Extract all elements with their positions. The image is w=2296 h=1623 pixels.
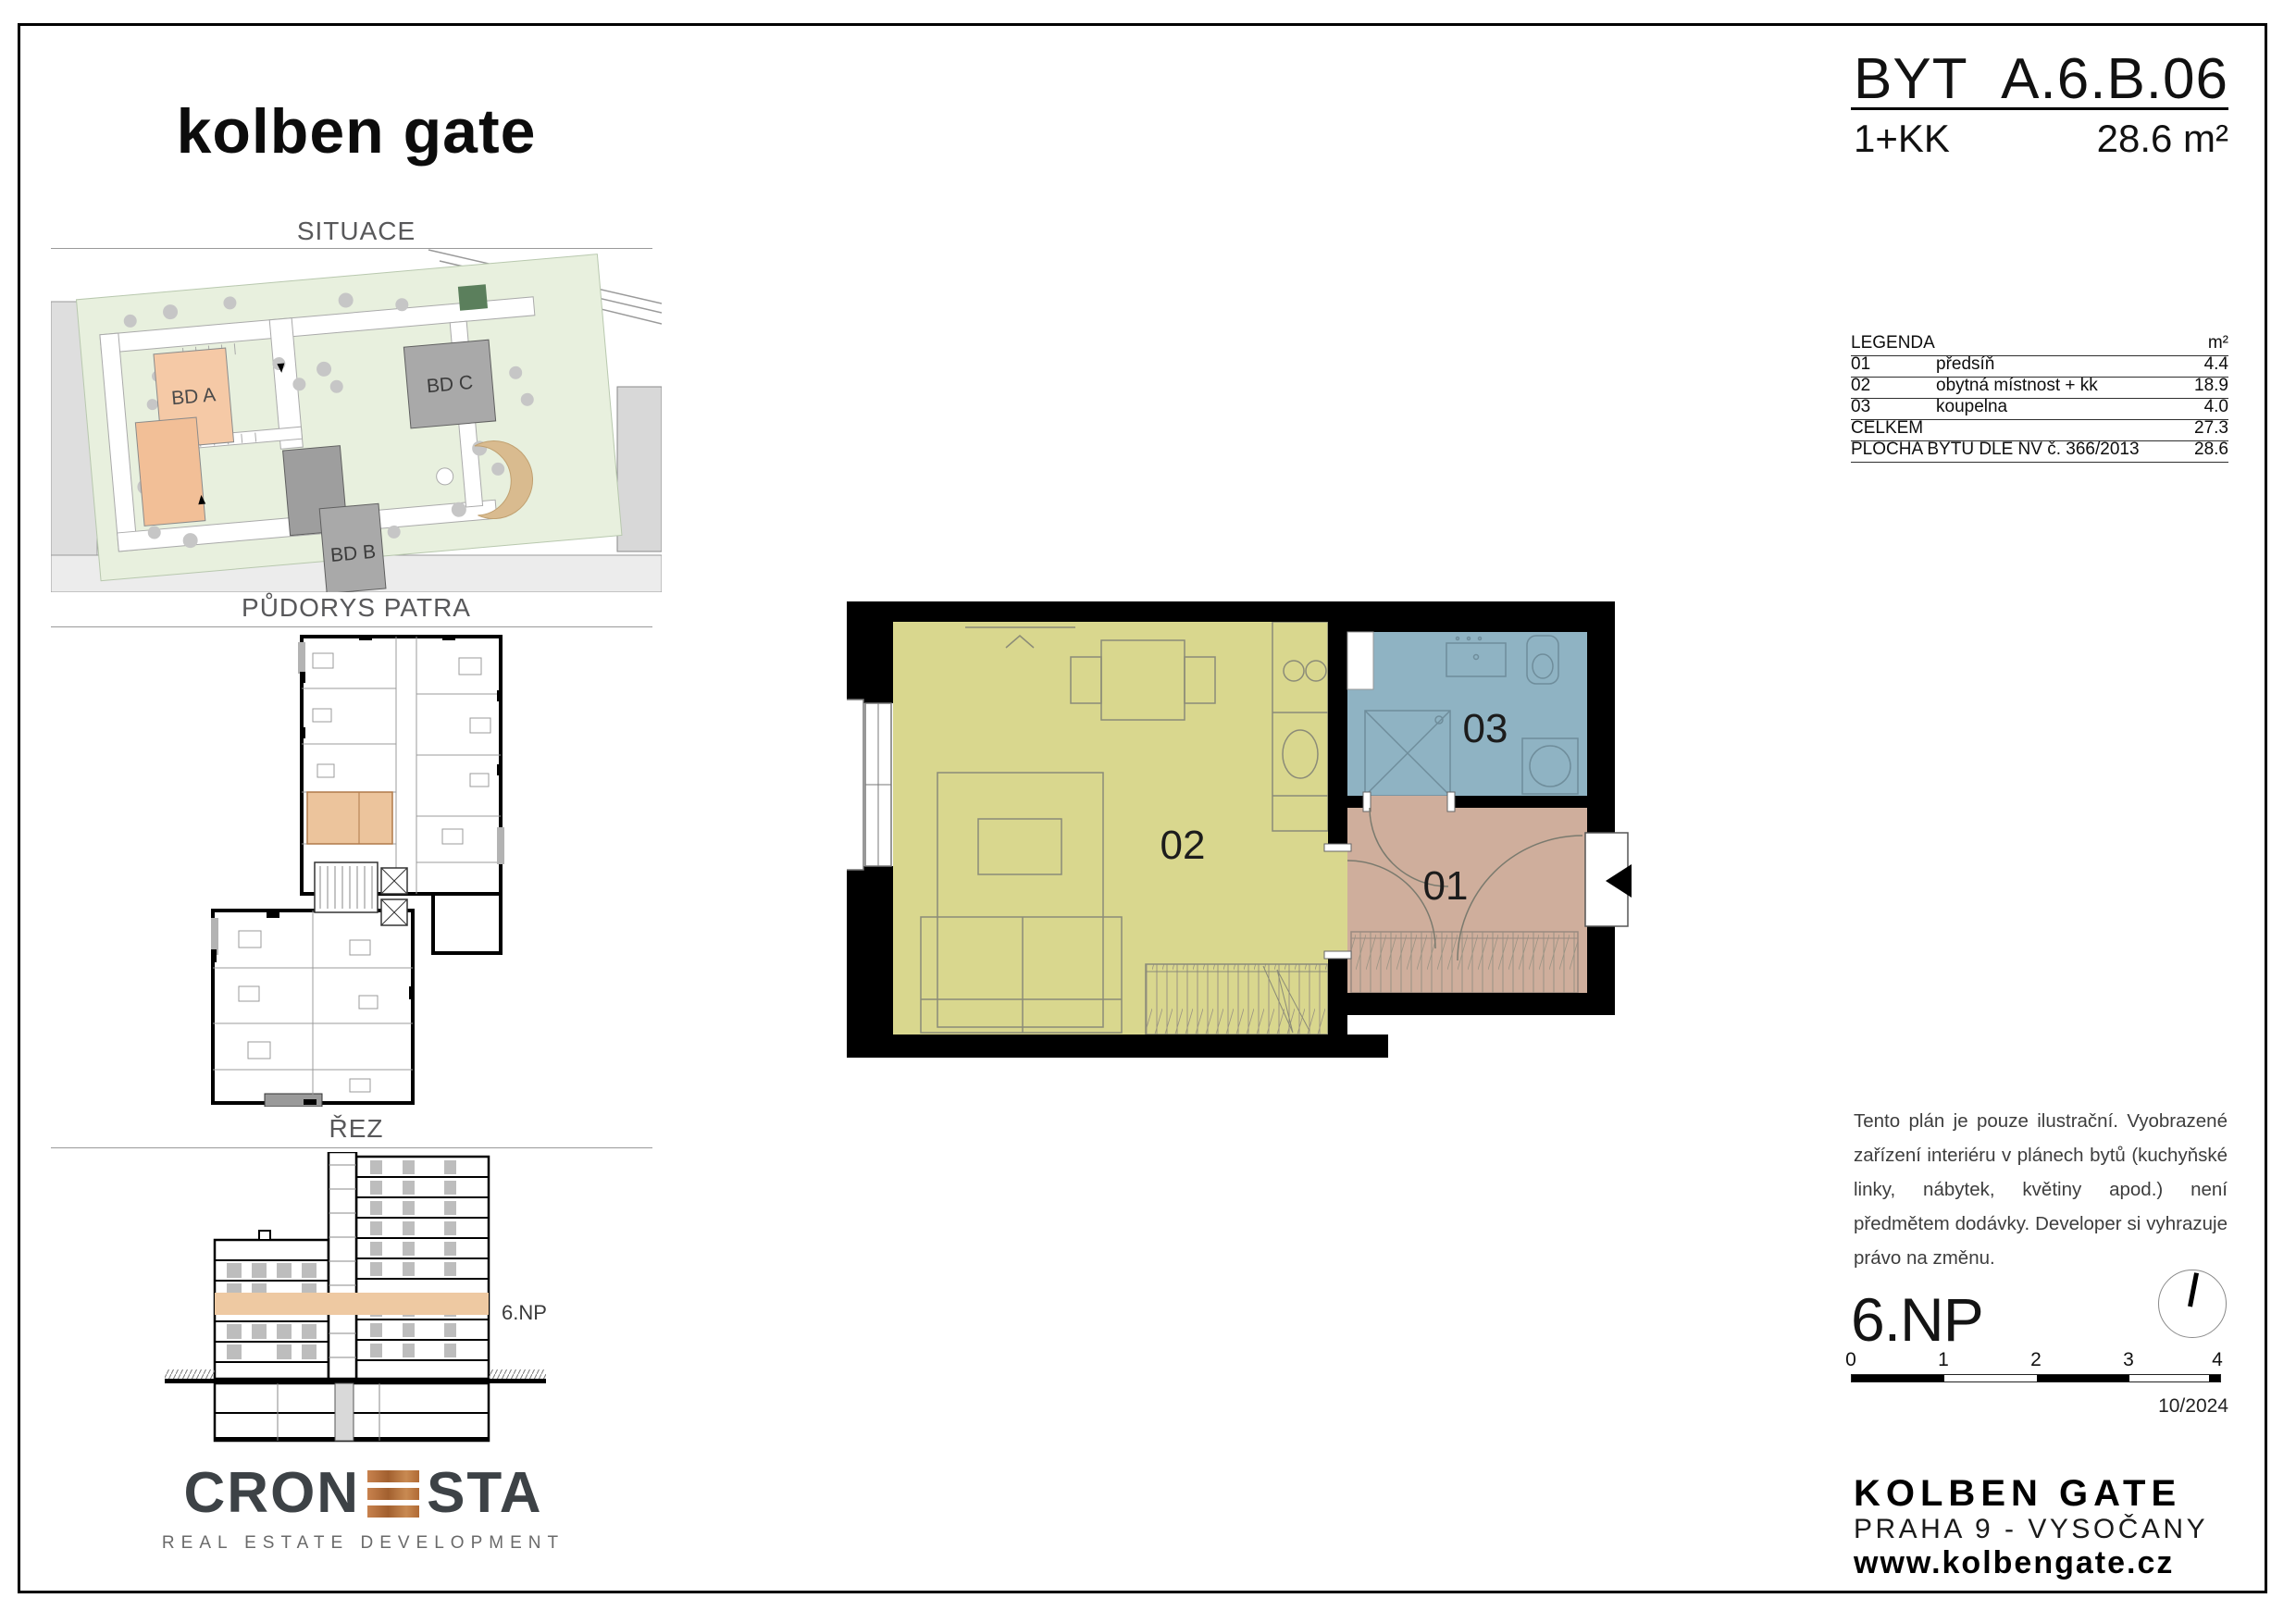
legend-title: LEGENDA [1851,333,2208,353]
window [847,700,893,870]
storey-upper-block [302,637,501,894]
room-label-01: 01 [1423,863,1469,909]
legend-header-row: LEGENDA m² [1851,335,2228,356]
layout-label: 1+KK [1854,117,1950,161]
legend-room-area: 4.4 [2204,354,2228,375]
legend-unit: m² [2208,333,2228,353]
bd-b-label: BD B [329,541,377,566]
kolben-gate-logo: kolben gate [93,95,620,167]
section-core [329,1152,356,1379]
highlighted-unit [307,792,392,844]
legend-plocha-value: 28.6 [2194,440,2228,460]
legend-room-num: 02 [1851,376,1936,396]
scale-bar-segments [1851,1374,2221,1382]
footer-project: KOLBEN GATE [1854,1473,2181,1515]
shaft-niche [1347,632,1373,689]
door-gap-bath-hall [1370,796,1448,808]
room-label-03: 03 [1463,706,1508,751]
cronesta-logo: CRON STA REAL ESTATE DEVELOPMENT [111,1465,615,1554]
north-needle-icon [2188,1272,2199,1307]
legend-plocha-label: PLOCHA BYTU DLE NV č. 366/2013 [1851,440,2194,460]
section-6np-band [215,1293,489,1315]
site-neighbor-block [617,387,662,551]
site-hedge [458,284,488,311]
scale-tick: 4 [2203,1349,2231,1371]
bd-a-label: BD A [170,384,217,409]
storey-upper-ext [433,894,501,953]
byt-label: BYT [1854,46,1968,112]
date-label: 10/2024 [1851,1395,2228,1418]
title-subrow: 1+KK 28.6 m² [1854,117,2228,161]
legend-total-row: CELKEM 27.3 [1851,420,2228,441]
legend-room-area: 18.9 [2194,376,2228,396]
cronesta-subtitle: REAL ESTATE DEVELOPMENT [111,1533,615,1554]
section-6np-label: 6.NP [502,1301,547,1324]
door-gap-living-hall [1328,850,1347,952]
scale-tick: 0 [1837,1349,1865,1371]
disclaimer-text: Tento plán je pouze ilustrační. Vyobraze… [1854,1104,2228,1275]
north-compass-icon [2158,1270,2227,1338]
pudorys-rule [51,626,652,627]
legend-room-name: koupelna [1936,397,2204,417]
legend-room-name: obytná místnost + kk [1936,376,2194,396]
living-wardrobe [1146,964,1328,1035]
site-plan: BD A BD C BD B [51,248,662,592]
section-basement [215,1383,489,1442]
legend-table: LEGENDA m² 01 předsíň 4.4 02 obytná míst… [1851,335,2228,463]
rez-heading: ŘEZ [51,1114,662,1144]
legend-row: 03 koupelna 4.0 [1851,399,2228,420]
bd-c-label: BD C [426,372,474,397]
section-roof-detail [259,1231,270,1240]
scale-tick: 2 [2022,1349,2050,1371]
section-ground-hatch-right [489,1369,546,1379]
footer-website: www.kolbengate.cz [1854,1545,2174,1581]
cronesta-e-bars-icon [367,1468,419,1520]
legend-row: 01 předsíň 4.4 [1851,356,2228,378]
plan-sheet: kolben gate BYT A.6.B.06 1+KK 28.6 m² SI… [0,0,2296,1623]
storey-plan [211,635,516,1107]
area-label: 28.6 m² [2097,117,2228,161]
legend-room-num: 03 [1851,397,1936,417]
section-drawing: 6.NP [139,1152,565,1457]
legend-plocha-row: PLOCHA BYTU DLE NV č. 366/2013 28.6 [1851,441,2228,463]
scale-tick: 3 [2115,1349,2142,1371]
unit-code: A.6.B.06 [2001,46,2228,112]
room-label-02: 02 [1160,823,1206,868]
scale-tick: 1 [1930,1349,1957,1371]
legend-room-num: 01 [1851,354,1936,375]
legend-row: 02 obytná místnost + kk 18.9 [1851,378,2228,399]
legend-total-label: CELKEM [1851,418,2194,439]
title-block: BYT A.6.B.06 [1854,46,2228,112]
floor-label: 6.NP [1851,1284,1983,1355]
footer-location: PRAHA 9 - VYSOČANY [1854,1514,2208,1545]
door-jamb [1324,844,1351,851]
apartment-plan: 02 01 03 [847,601,1633,1058]
legend-room-area: 4.0 [2204,397,2228,417]
building-bd-a-wing [135,417,205,526]
section-ground-hatch-left [165,1369,215,1379]
cronesta-part1: CRON [184,1465,361,1522]
door-jamb [1447,792,1455,811]
pudorys-heading: PŮDORYS PATRA [51,593,662,623]
cronesta-part2: STA [427,1465,542,1522]
situace-heading: SITUACE [51,217,662,246]
door-jamb [1324,951,1351,959]
legend-room-name: předsíň [1936,354,2204,375]
title-divider [1851,107,2228,110]
legend-total-value: 27.3 [2194,418,2228,439]
scale-bar: 0 1 2 3 4 [1851,1349,2221,1388]
rez-rule [51,1147,652,1148]
hall-wardrobe [1351,932,1578,993]
